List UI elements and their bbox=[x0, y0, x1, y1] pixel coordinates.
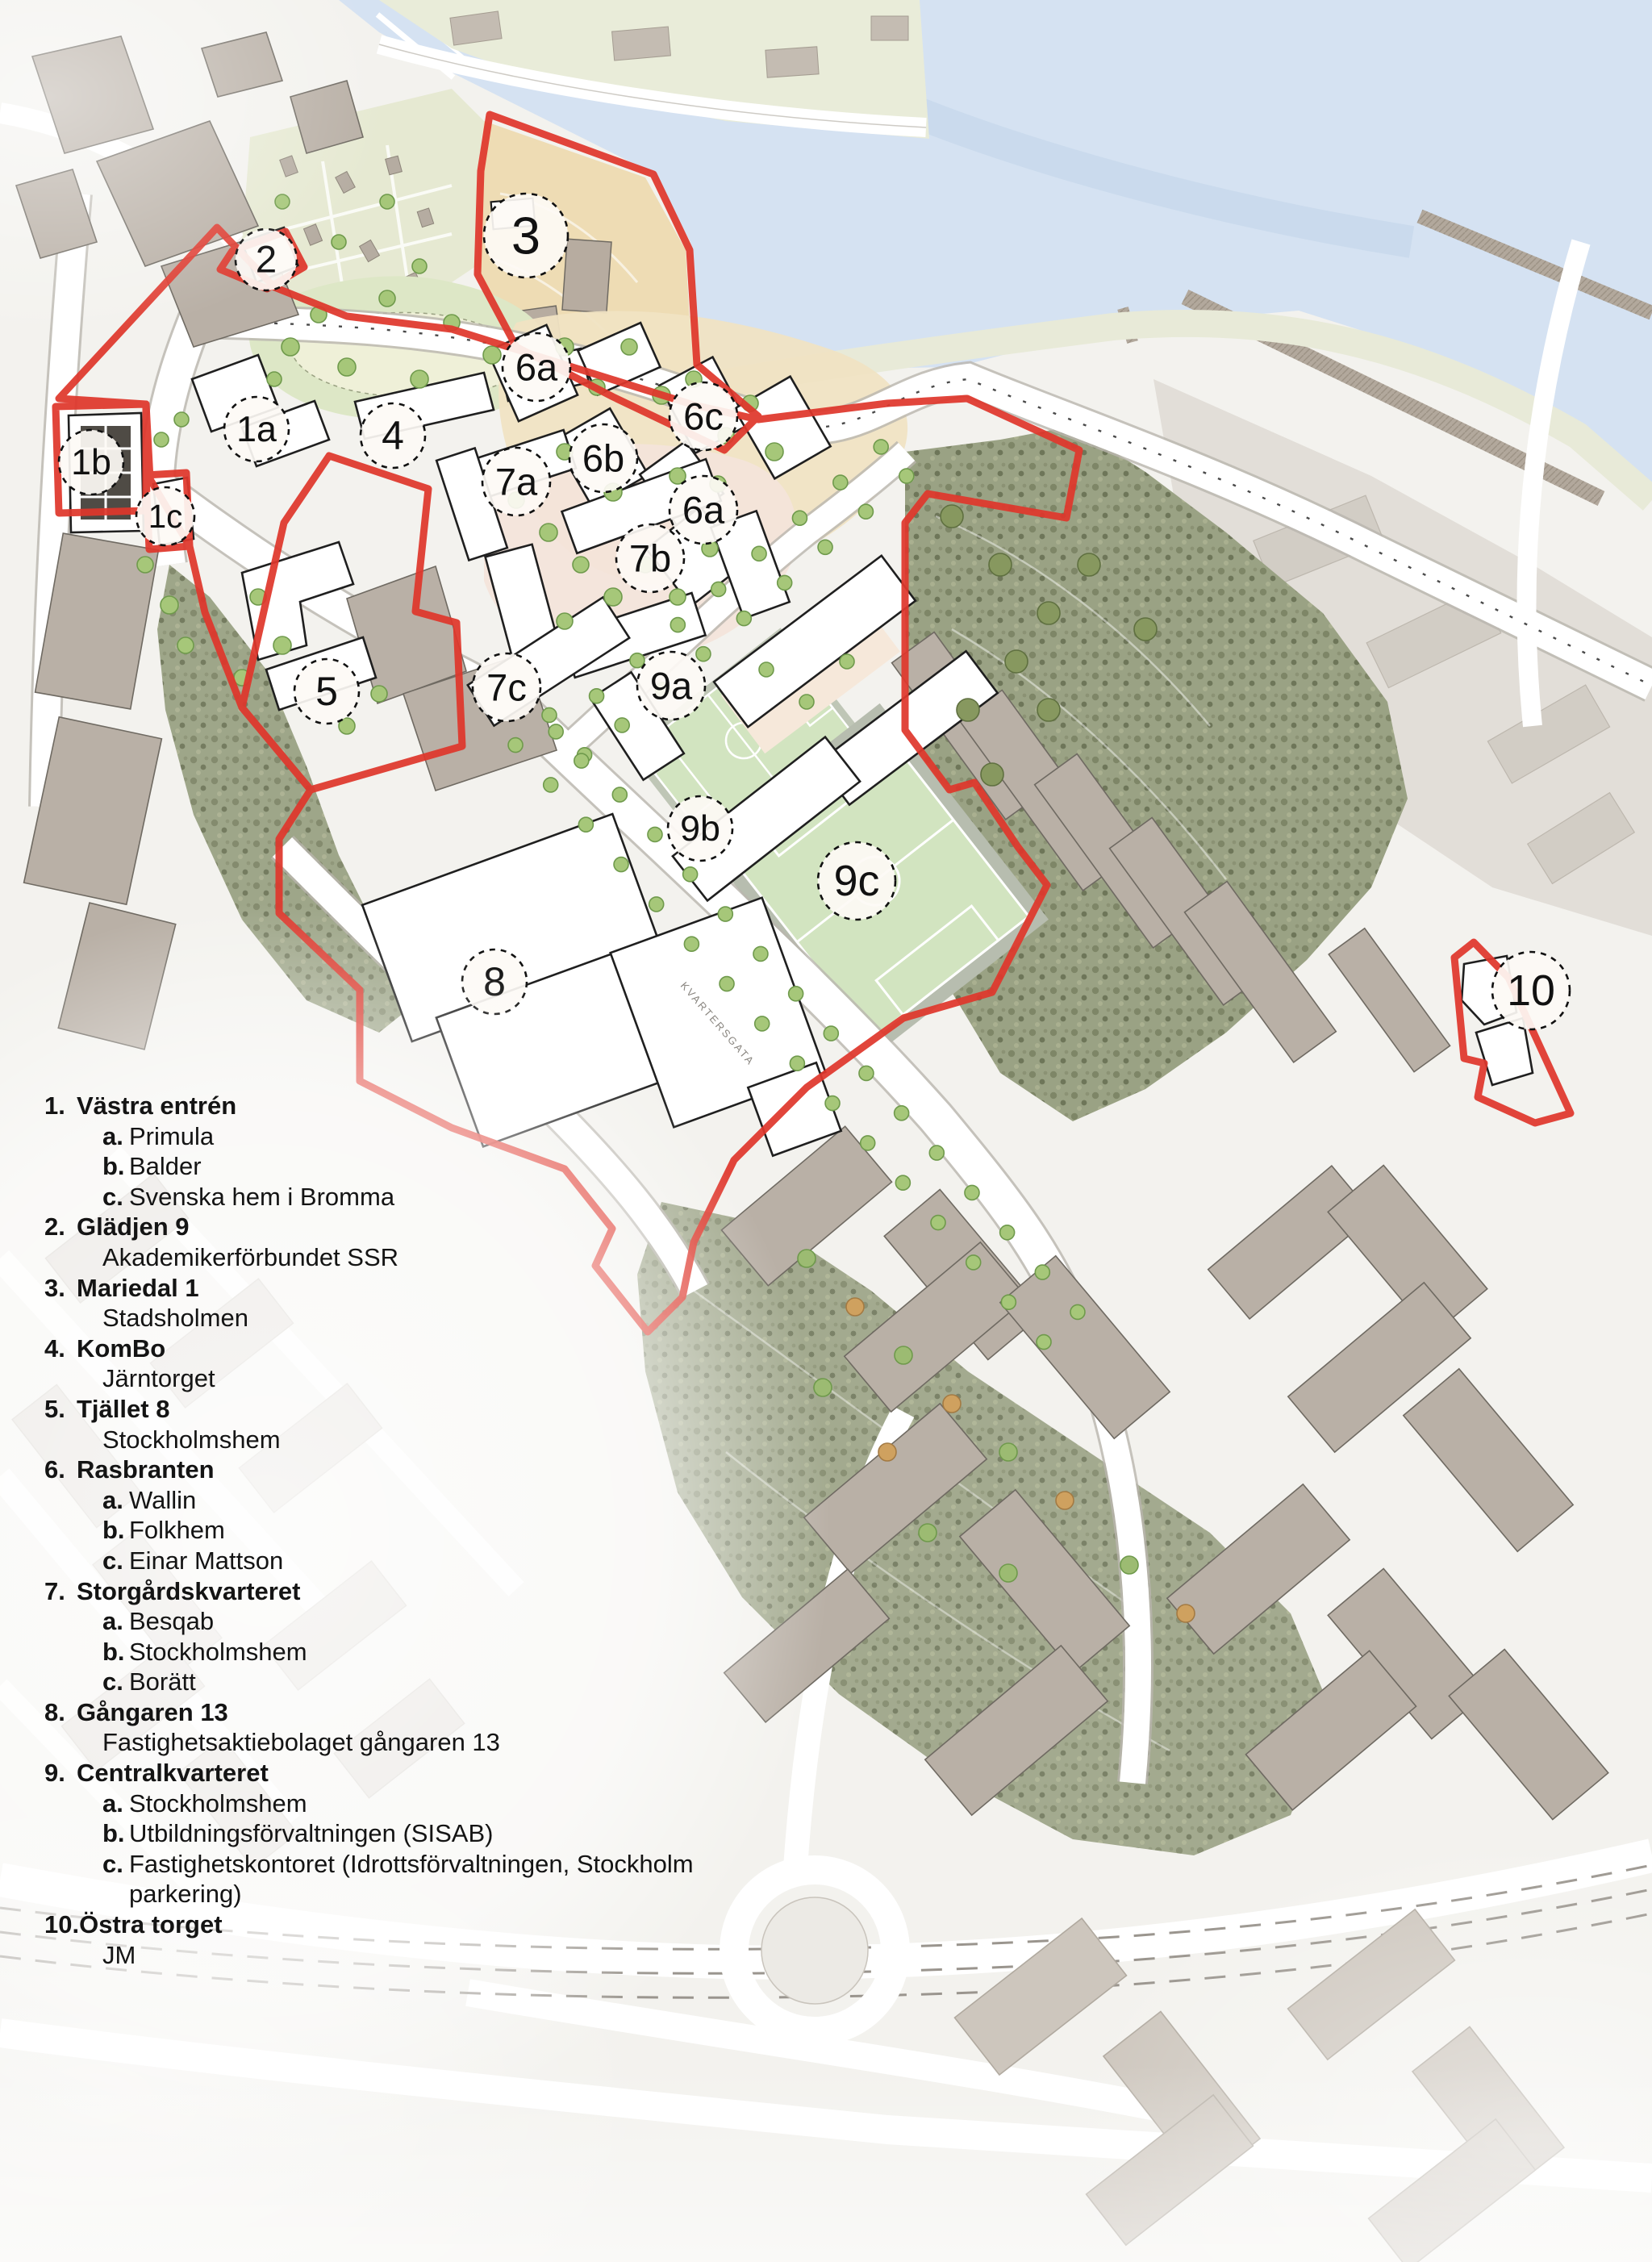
tree-icon bbox=[379, 290, 395, 307]
svg-text:1a: 1a bbox=[236, 409, 277, 449]
tree-icon bbox=[895, 1175, 910, 1190]
tree-icon bbox=[818, 540, 832, 554]
svg-text:5: 5 bbox=[315, 669, 338, 714]
tree-icon bbox=[574, 753, 589, 768]
map-label-2: 2 bbox=[236, 229, 297, 290]
svg-text:1b: 1b bbox=[71, 442, 111, 482]
svg-text:7c: 7c bbox=[486, 666, 527, 709]
tree-icon bbox=[799, 695, 814, 709]
legend-item-9: 9.Centralkvarteret bbox=[44, 1758, 835, 1788]
tree-icon bbox=[483, 346, 501, 364]
tree-icon bbox=[604, 588, 622, 606]
map-label-6b: 6b bbox=[569, 424, 637, 492]
map-label-10: 10 bbox=[1492, 952, 1570, 1029]
map-label-4: 4 bbox=[361, 403, 425, 468]
tree-icon bbox=[630, 653, 645, 668]
tree-icon bbox=[508, 738, 523, 753]
tree-icon bbox=[557, 613, 573, 629]
legend-item-8: 8.Gångaren 13 bbox=[44, 1697, 835, 1728]
tree-icon bbox=[989, 553, 1012, 576]
legend-item-3: 3.Mariedal 1 bbox=[44, 1273, 835, 1304]
legend-item-6: 6.Rasbranten bbox=[44, 1454, 835, 1485]
tree-icon bbox=[789, 987, 803, 1001]
legend-sub-item: b.Folkhem bbox=[44, 1515, 835, 1546]
legend-sub-item: b.Balder bbox=[44, 1151, 835, 1182]
svg-text:3: 3 bbox=[511, 207, 540, 265]
tree-icon bbox=[380, 194, 394, 209]
tree-icon bbox=[824, 1026, 838, 1041]
tree-icon bbox=[846, 1298, 864, 1316]
tree-icon bbox=[957, 699, 979, 721]
tree-icon bbox=[965, 1185, 979, 1200]
site-plan-page: KVARTERSGATA 231a1b1c46a6c6b7a6a7b7c9a59… bbox=[0, 0, 1652, 2262]
legend-sub-item: c.Svenska hem i Bromma bbox=[44, 1182, 835, 1212]
svg-text:6c: 6c bbox=[683, 395, 724, 438]
legend-item-1: 1.Västra entrén bbox=[44, 1091, 835, 1121]
tree-icon bbox=[154, 432, 169, 447]
tree-icon bbox=[683, 867, 698, 882]
map-label-8: 8 bbox=[462, 949, 527, 1014]
legend-sub-item: c.Fastighetskontoret (Idrottsförvaltning… bbox=[44, 1849, 835, 1880]
tree-icon bbox=[412, 259, 427, 273]
map-label-9b: 9b bbox=[668, 796, 732, 861]
svg-text:4: 4 bbox=[382, 413, 404, 458]
tree-icon bbox=[1078, 553, 1100, 576]
tree-icon bbox=[1035, 1265, 1049, 1279]
legend-developer: Akademikerförbundet SSR bbox=[44, 1242, 835, 1273]
tree-icon bbox=[338, 358, 356, 376]
tree-icon bbox=[778, 575, 792, 590]
legend-item-5: 5.Tjället 8 bbox=[44, 1394, 835, 1425]
tree-icon bbox=[684, 937, 699, 951]
tree-icon bbox=[759, 662, 774, 677]
tree-icon bbox=[137, 557, 153, 573]
tree-icon bbox=[670, 618, 685, 632]
svg-text:7a: 7a bbox=[495, 461, 538, 503]
tree-icon bbox=[943, 1395, 961, 1413]
legend-item-7: 7.Storgårdskvarteret bbox=[44, 1576, 835, 1607]
tree-icon bbox=[648, 827, 662, 841]
legend-item-2: 2.Glädjen 9 bbox=[44, 1212, 835, 1242]
tree-icon bbox=[878, 1443, 896, 1461]
svg-text:8: 8 bbox=[483, 959, 506, 1004]
map-label-6c: 6c bbox=[670, 382, 737, 450]
tree-icon bbox=[578, 817, 593, 832]
legend-developer: Fastighetsaktiebolaget gångaren 13 bbox=[44, 1727, 835, 1758]
tree-icon bbox=[766, 443, 783, 461]
tree-icon bbox=[1177, 1605, 1195, 1622]
tree-icon bbox=[874, 440, 888, 454]
svg-text:1c: 1c bbox=[148, 498, 183, 535]
legend-developer: JM bbox=[44, 1940, 835, 1971]
tree-icon bbox=[411, 370, 428, 388]
map-label-9a: 9a bbox=[637, 652, 705, 720]
svg-text:9a: 9a bbox=[650, 665, 693, 707]
tree-icon bbox=[549, 724, 563, 739]
tree-icon bbox=[267, 372, 282, 386]
tree-icon bbox=[755, 1016, 770, 1031]
svg-text:2: 2 bbox=[256, 239, 277, 282]
map-label-1a: 1a bbox=[224, 397, 289, 461]
tree-icon bbox=[371, 686, 387, 702]
tree-icon bbox=[753, 946, 768, 961]
tree-icon bbox=[332, 235, 346, 249]
tree-icon bbox=[858, 504, 873, 519]
tree-icon bbox=[1037, 699, 1060, 721]
tree-icon bbox=[275, 194, 290, 209]
tree-icon bbox=[966, 1255, 981, 1270]
legend-developer: Stadsholmen bbox=[44, 1303, 835, 1333]
tree-icon bbox=[999, 1443, 1017, 1461]
tree-icon bbox=[1070, 1304, 1085, 1319]
svg-text:9c: 9c bbox=[834, 857, 880, 905]
svg-text:10: 10 bbox=[1507, 966, 1555, 1015]
map-label-1c: 1c bbox=[136, 487, 194, 545]
tree-icon bbox=[736, 611, 751, 626]
tree-icon bbox=[614, 858, 628, 872]
tree-icon bbox=[540, 524, 557, 541]
tree-icon bbox=[711, 582, 726, 596]
tree-icon bbox=[273, 636, 291, 654]
legend-sub-item: a.Stockholmshem bbox=[44, 1788, 835, 1819]
map-label-5: 5 bbox=[294, 659, 359, 724]
svg-text:9b: 9b bbox=[680, 808, 720, 849]
tree-icon bbox=[282, 338, 299, 356]
map-label-6a-south: 6a bbox=[670, 476, 737, 544]
tree-icon bbox=[861, 1136, 875, 1150]
tree-icon bbox=[1120, 1556, 1138, 1574]
tree-icon bbox=[720, 977, 734, 991]
map-label-7c: 7c bbox=[473, 653, 540, 721]
tree-icon bbox=[859, 1066, 874, 1080]
legend-sub-item-wrap: parkering) bbox=[44, 1879, 835, 1909]
tree-icon bbox=[174, 412, 189, 427]
map-label-9c: 9c bbox=[818, 842, 895, 920]
tree-icon bbox=[1056, 1492, 1074, 1509]
tree-icon bbox=[670, 589, 686, 605]
tree-icon bbox=[941, 505, 963, 528]
legend-sub-item: c.Einar Mattson bbox=[44, 1546, 835, 1576]
tree-icon bbox=[1037, 1335, 1051, 1350]
tree-icon bbox=[981, 763, 1003, 786]
tree-icon bbox=[621, 339, 637, 355]
tree-icon bbox=[895, 1106, 909, 1121]
tree-icon bbox=[1005, 650, 1028, 673]
tree-icon bbox=[1000, 1225, 1015, 1240]
legend-developer: Järntorget bbox=[44, 1363, 835, 1394]
legend-sub-item: a.Primula bbox=[44, 1121, 835, 1152]
legend-developer: Stockholmshem bbox=[44, 1425, 835, 1455]
tree-icon bbox=[590, 689, 604, 703]
tree-icon bbox=[177, 637, 194, 653]
tree-icon bbox=[1001, 1295, 1016, 1309]
legend-sub-item: c.Borätt bbox=[44, 1667, 835, 1697]
map-label-7a: 7a bbox=[482, 448, 550, 515]
legend: 1.Västra entréna.Primulab.Balderc.Svensk… bbox=[44, 1091, 835, 1970]
legend-sub-item: b.Stockholmshem bbox=[44, 1637, 835, 1667]
tree-icon bbox=[752, 546, 766, 561]
tree-icon bbox=[161, 596, 178, 614]
tree-icon bbox=[612, 787, 627, 802]
tree-icon bbox=[840, 654, 854, 669]
tree-icon bbox=[929, 1146, 944, 1160]
tree-icon bbox=[792, 511, 807, 525]
tree-icon bbox=[1037, 602, 1060, 624]
svg-text:6a: 6a bbox=[515, 346, 558, 389]
map-label-6a-north: 6a bbox=[503, 333, 570, 401]
tree-icon bbox=[649, 897, 664, 912]
tree-icon bbox=[542, 707, 557, 722]
tree-icon bbox=[696, 647, 711, 661]
tree-icon bbox=[615, 718, 629, 732]
svg-text:6b: 6b bbox=[582, 437, 624, 480]
svg-text:6a: 6a bbox=[682, 489, 725, 532]
tree-icon bbox=[899, 469, 914, 483]
legend-sub-item: b.Utbildningsförvaltningen (SISAB) bbox=[44, 1818, 835, 1849]
tree-icon bbox=[1134, 618, 1157, 641]
tree-icon bbox=[999, 1564, 1017, 1582]
tree-icon bbox=[544, 778, 558, 792]
svg-text:7b: 7b bbox=[629, 537, 671, 580]
tree-icon bbox=[895, 1346, 912, 1364]
tree-icon bbox=[833, 475, 848, 490]
tree-icon bbox=[931, 1216, 945, 1230]
tree-icon bbox=[573, 557, 589, 573]
tree-icon bbox=[718, 907, 732, 921]
tree-icon bbox=[790, 1056, 804, 1070]
map-label-1b: 1b bbox=[59, 430, 123, 495]
tree-icon bbox=[919, 1524, 937, 1542]
legend-item-10: 10.Östra torget bbox=[44, 1909, 835, 1940]
legend-item-4: 4.KomBo bbox=[44, 1333, 835, 1364]
legend-sub-item: a.Besqab bbox=[44, 1606, 835, 1637]
map-label-7b: 7b bbox=[616, 524, 684, 592]
legend-sub-item: a.Wallin bbox=[44, 1485, 835, 1516]
map-label-3: 3 bbox=[484, 194, 568, 278]
